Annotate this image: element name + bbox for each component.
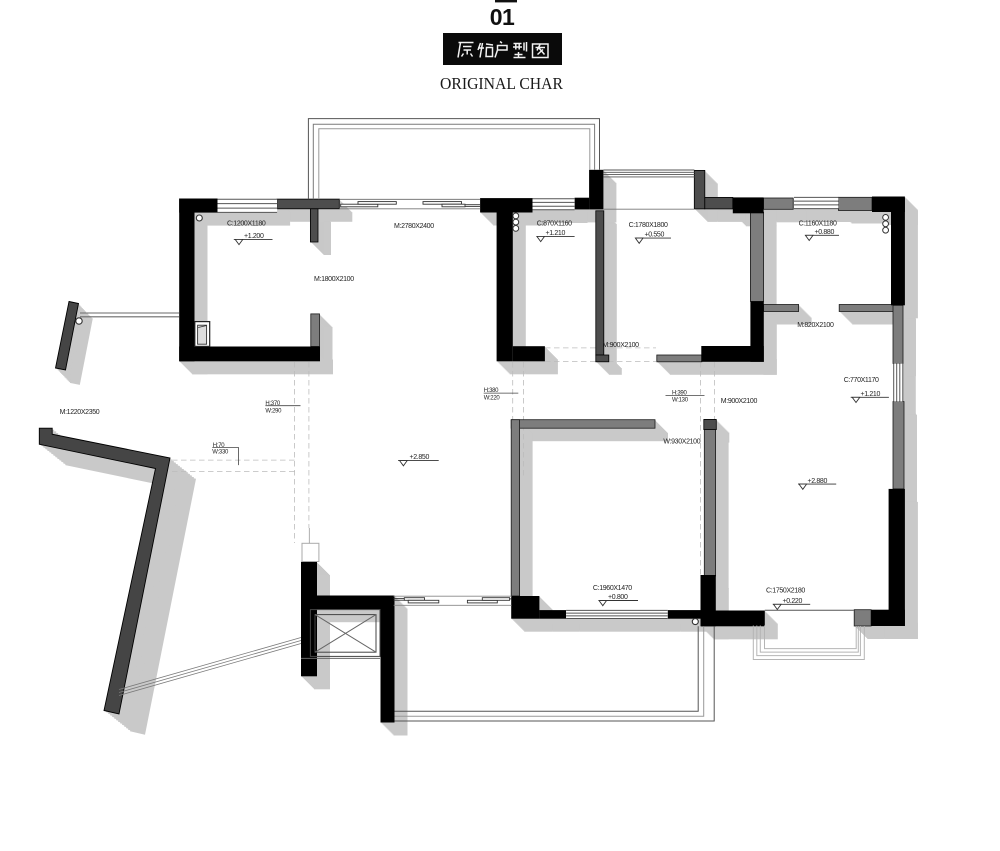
svg-text:+2.850: +2.850 (410, 454, 430, 461)
svg-text:W:130: W:130 (672, 398, 689, 404)
svg-text:+1.210: +1.210 (546, 230, 566, 237)
svg-text:M:2780X2400: M:2780X2400 (394, 223, 434, 230)
svg-text:W:290: W:290 (265, 409, 282, 415)
svg-text:ORIGINAL CHAR: ORIGINAL CHAR (440, 74, 563, 93)
svg-text:+0.800: +0.800 (608, 594, 628, 601)
svg-text:C:1200X1180: C:1200X1180 (227, 221, 266, 228)
svg-text:+1.200: +1.200 (244, 233, 264, 240)
svg-text:C:1750X2180: C:1750X2180 (766, 587, 805, 594)
svg-text:C:1960X1470: C:1960X1470 (593, 585, 632, 592)
svg-text:+0.880: +0.880 (815, 229, 835, 236)
svg-text:C:1160X1180: C:1160X1180 (799, 221, 837, 228)
svg-text:01: 01 (490, 4, 515, 30)
svg-text:+0.550: +0.550 (645, 232, 665, 239)
svg-text:+0.220: +0.220 (783, 598, 803, 605)
svg-text:M:1220X2350: M:1220X2350 (60, 409, 100, 416)
svg-text:+2.880: +2.880 (808, 478, 828, 485)
svg-text:M:820X2100: M:820X2100 (797, 322, 834, 329)
svg-text:C:870X1160: C:870X1160 (537, 221, 572, 228)
svg-text:+1.210: +1.210 (861, 391, 881, 398)
svg-text:C:1780X1800: C:1780X1800 (629, 222, 668, 229)
svg-text:M:900X2100: M:900X2100 (721, 398, 758, 405)
svg-text:M:1800X2100: M:1800X2100 (314, 276, 354, 283)
svg-text:W:330: W:330 (212, 450, 229, 456)
svg-text:C:770X1170: C:770X1170 (844, 377, 879, 384)
svg-text:M:900X2100: M:900X2100 (603, 342, 640, 349)
svg-text:W:930X2100: W:930X2100 (663, 439, 700, 446)
svg-text:W:220: W:220 (484, 396, 501, 402)
